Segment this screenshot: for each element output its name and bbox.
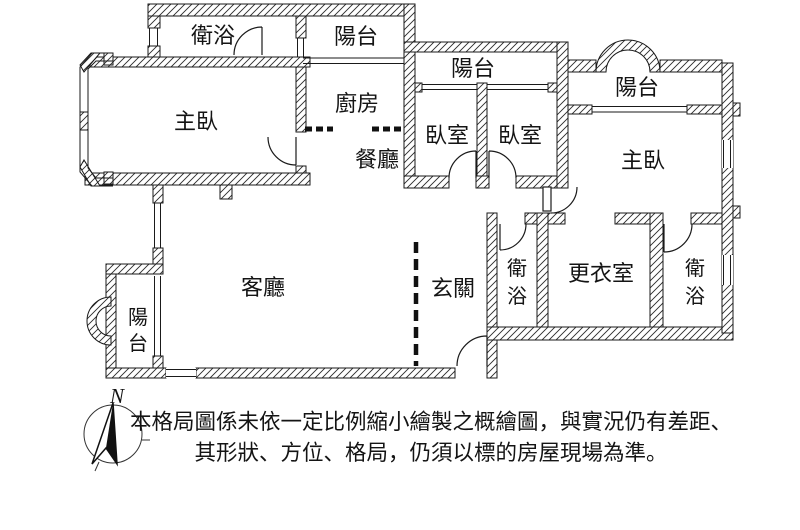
window <box>155 276 161 356</box>
wall-segment <box>220 185 232 199</box>
room-label-balcony-n2: 陽台 <box>451 56 495 81</box>
wall-segment <box>106 264 163 274</box>
room-label-bedroom-1: 臥室 <box>425 123 469 148</box>
disclaimer-group: 本格局圖係未依一定比例縮小繪製之概繪圖，與實況仍有差距、 其形狀、方位、格局，仍… <box>130 410 732 465</box>
wall-segment <box>733 206 740 218</box>
room-label-bath-e: 浴 <box>685 285 705 308</box>
wall-segment <box>568 60 596 72</box>
bay-window <box>88 61 113 178</box>
wall-segment <box>90 57 310 67</box>
wall-segment <box>650 213 663 337</box>
room-label-master-e: 主臥 <box>621 148 665 173</box>
bay-window-block <box>104 53 113 65</box>
wall-segment <box>196 368 455 378</box>
window <box>487 85 548 90</box>
wall-segment <box>148 16 160 28</box>
window <box>422 85 477 90</box>
walls-group <box>80 4 740 378</box>
window <box>155 203 161 248</box>
wall-segment <box>153 185 163 203</box>
wall-segment <box>85 173 310 185</box>
wall-segment <box>487 213 497 337</box>
bay-window-block <box>80 112 88 130</box>
window <box>303 58 404 64</box>
wall-segment <box>733 103 740 116</box>
wall-segment <box>537 213 548 337</box>
room-label-bath-mid: 衛 <box>507 257 527 280</box>
wall-segment <box>404 42 568 52</box>
wall-segment <box>106 274 116 368</box>
room-label-balcony-n1: 陽台 <box>334 24 378 49</box>
window <box>592 107 687 113</box>
wall-segment <box>106 368 166 378</box>
door-arc <box>449 151 476 178</box>
door-arc <box>664 224 692 252</box>
wall-segment <box>691 213 723 224</box>
room-label-closet: 更衣室 <box>568 261 634 286</box>
window <box>150 28 158 46</box>
wall-segment <box>487 327 733 340</box>
room-label-master-w: 主臥 <box>174 109 218 134</box>
room-label-kitchen: 廚房 <box>335 91 379 116</box>
room-label-balcony-sw: 台 <box>128 332 148 355</box>
wall-segment <box>415 83 422 92</box>
compass-tick <box>95 462 99 471</box>
room-labels-group: 衛浴 陽台 主臥 廚房 餐廳 陽台 臥室 臥室 陽台 主臥 客廳 玄關 更衣室 … <box>128 23 705 355</box>
room-label-living: 客廳 <box>241 275 285 300</box>
disclaimer-line-1: 本格局圖係未依一定比例縮小繪製之概繪圖，與實況仍有差距、 <box>130 410 732 434</box>
wall-segment <box>557 42 568 188</box>
door-arc <box>457 336 487 366</box>
room-label-balcony-sw: 陽 <box>128 306 148 329</box>
room-label-balcony-ne: 陽台 <box>615 75 659 100</box>
wall-segment <box>148 4 415 16</box>
room-label-dining: 餐廳 <box>355 147 399 172</box>
wall-segment <box>568 105 592 114</box>
room-label-bath-nw: 衛浴 <box>191 23 235 48</box>
wall-segment <box>153 356 163 368</box>
wall-segment <box>548 83 557 92</box>
room-label-entry: 玄關 <box>431 276 475 301</box>
floorplan-svg: 衛浴 陽台 主臥 廚房 餐廳 陽台 臥室 臥室 陽台 主臥 客廳 玄關 更衣室 … <box>0 0 800 530</box>
balcony-arch <box>596 40 660 72</box>
door-arc <box>268 137 296 165</box>
door-arc <box>551 187 577 213</box>
wall-segment <box>477 83 487 176</box>
room-label-bath-mid: 浴 <box>507 285 527 308</box>
wall-segment <box>487 337 497 378</box>
wall-segment <box>687 105 722 114</box>
door-arc <box>489 151 516 178</box>
door-leaf <box>543 187 551 211</box>
window <box>298 38 304 57</box>
wall-segment <box>296 67 306 132</box>
wall-segment <box>296 16 306 38</box>
compass-center-dot <box>110 432 114 436</box>
wall-segment <box>404 176 449 188</box>
wall-segment <box>404 4 415 176</box>
wall-segment <box>660 60 722 72</box>
floorplan-page: 衛浴 陽台 主臥 廚房 餐廳 陽台 臥室 臥室 陽台 主臥 客廳 玄關 更衣室 … <box>0 0 800 530</box>
north-label: N <box>109 384 125 408</box>
room-label-bedroom-2: 臥室 <box>498 123 542 148</box>
door-arc <box>500 224 526 250</box>
wall-segment <box>722 63 733 333</box>
room-label-bath-e: 衛 <box>685 257 705 280</box>
wall-segment <box>476 176 489 188</box>
disclaimer-line-2: 其形狀、方位、格局，仍須以標的房屋現場為準。 <box>194 441 667 465</box>
door-arc <box>234 27 262 55</box>
